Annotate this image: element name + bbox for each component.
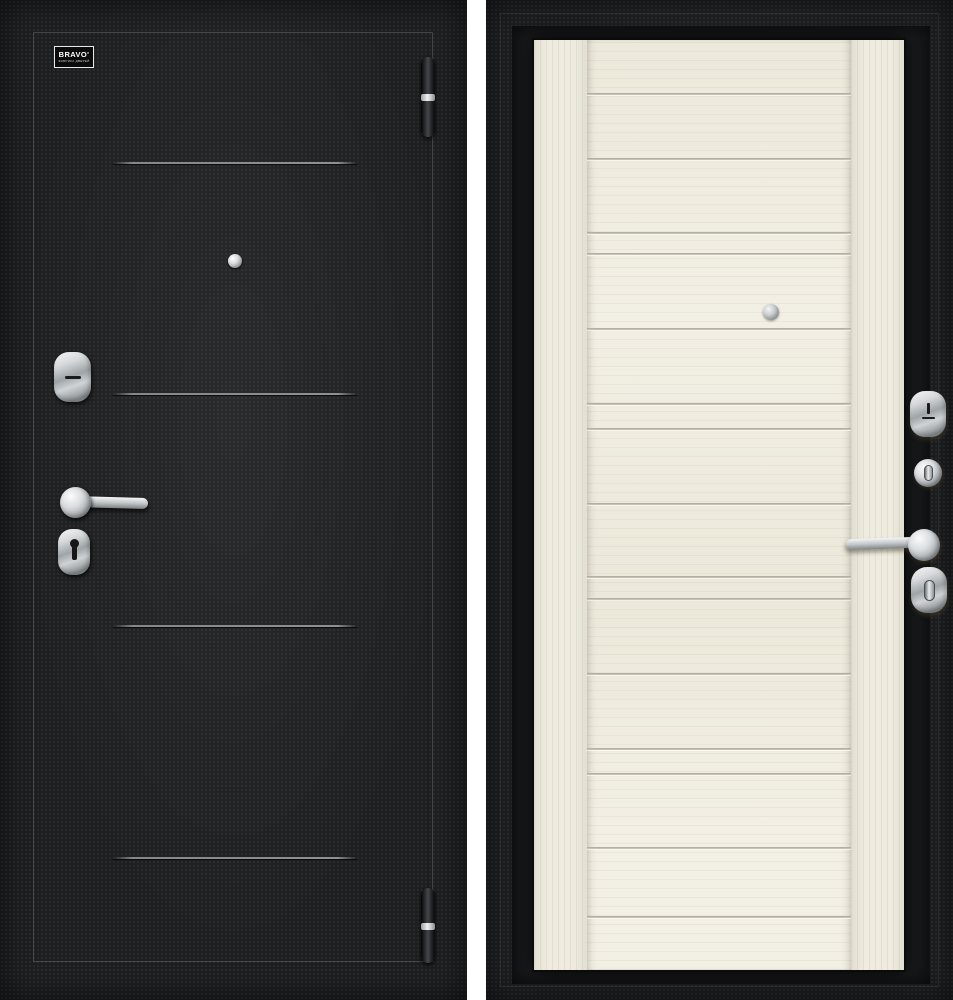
brand-logo-plate: BRAVO' ФАБРИКА ДВЕРЕЙ xyxy=(54,46,94,68)
plank-groove-line xyxy=(587,93,851,95)
plank-groove-line xyxy=(587,673,851,675)
image-gap-divider xyxy=(467,0,486,1000)
plank-groove-line xyxy=(587,428,851,430)
hinge xyxy=(421,57,435,137)
wood-stile-right xyxy=(851,40,904,970)
peephole xyxy=(763,304,779,320)
door-handle-rosette xyxy=(908,529,940,561)
plank-groove-line xyxy=(587,576,851,578)
wood-panel xyxy=(534,40,904,970)
wood-center-planks xyxy=(587,40,851,970)
product-photo-door-two-sides: BRAVO' ФАБРИКА ДВЕРЕЙ xyxy=(0,0,953,1000)
thumbturn-pill xyxy=(924,580,935,601)
brand-logo-tagline: ФАБРИКА ДВЕРЕЙ xyxy=(58,60,89,63)
door-back-wood-side xyxy=(486,0,953,1000)
hinge-band xyxy=(421,94,435,101)
plank-groove-line xyxy=(587,916,851,918)
front-groove-line xyxy=(113,393,357,395)
plank-groove-line xyxy=(587,253,851,255)
keyhole-slot xyxy=(65,376,81,379)
door-front-black-side: BRAVO' ФАБРИКА ДВЕРЕЙ xyxy=(0,0,467,1000)
front-groove-line xyxy=(113,162,357,164)
brand-logo-text: BRAVO' xyxy=(59,51,90,59)
keyhole-slot xyxy=(927,403,930,414)
plank-groove-line xyxy=(587,158,851,160)
peephole xyxy=(228,254,242,268)
cylinder-lock-escutcheon xyxy=(54,352,91,402)
plank-groove-line xyxy=(587,328,851,330)
plank-groove-line xyxy=(587,503,851,505)
plank-groove-line xyxy=(587,598,851,600)
front-groove-line xyxy=(113,625,357,627)
plank-groove-line xyxy=(587,847,851,849)
oval-thumbturn xyxy=(911,567,947,613)
thumbturn-pill xyxy=(924,465,933,481)
keyhole-slot-dash xyxy=(922,417,935,419)
plank-groove-line xyxy=(587,232,851,234)
plank-groove-line xyxy=(587,403,851,405)
thumbturn-knob xyxy=(914,459,942,487)
front-groove-line xyxy=(113,857,357,859)
plank-groove-line xyxy=(587,773,851,775)
keyhole-escutcheon xyxy=(58,529,90,575)
hinge-band xyxy=(421,923,435,930)
plank-groove-line xyxy=(587,748,851,750)
door-handle-rosette xyxy=(60,487,91,518)
keyhole-stem xyxy=(72,546,77,560)
wood-stile-left xyxy=(534,40,587,970)
hinge xyxy=(421,888,435,963)
cylinder-lock-escutcheon xyxy=(910,391,946,437)
